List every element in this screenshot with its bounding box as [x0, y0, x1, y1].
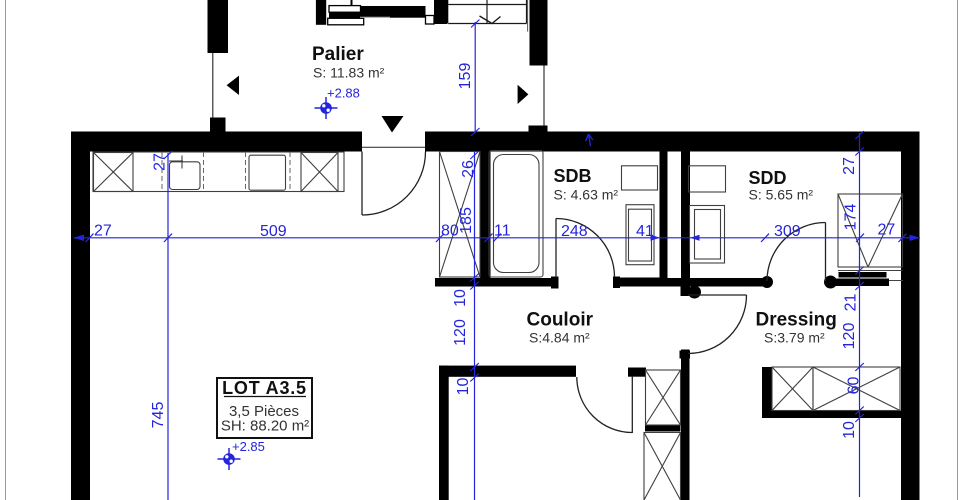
svg-text:LOT A3.5: LOT A3.5: [222, 378, 307, 398]
svg-text:27: 27: [152, 153, 169, 171]
svg-text:+2.85: +2.85: [232, 439, 265, 454]
svg-text:745: 745: [150, 402, 167, 429]
svg-text:SDB: SDB: [554, 166, 592, 186]
svg-text:41: 41: [636, 223, 654, 240]
svg-text:SDD: SDD: [749, 168, 787, 188]
svg-text:248: 248: [561, 223, 588, 240]
svg-text:27: 27: [841, 157, 858, 175]
svg-text:11: 11: [494, 223, 511, 240]
svg-text:S: 11.83 m²: S: 11.83 m²: [313, 65, 385, 81]
svg-text:174: 174: [843, 204, 860, 231]
svg-text:SH: 88.20 m²: SH: 88.20 m²: [221, 418, 309, 435]
svg-text:S:3.79 m²: S:3.79 m²: [764, 330, 825, 346]
svg-text:309: 309: [774, 223, 801, 240]
svg-text:159: 159: [457, 63, 474, 90]
svg-text:+2.88: +2.88: [327, 86, 360, 101]
svg-text:185: 185: [458, 207, 475, 234]
svg-text:120: 120: [452, 319, 469, 346]
svg-text:S: 5.65 m²: S: 5.65 m²: [749, 187, 814, 203]
svg-text:Palier: Palier: [312, 44, 364, 65]
svg-text:S:4.84 m²: S:4.84 m²: [529, 330, 590, 346]
svg-text:509: 509: [260, 223, 287, 240]
svg-text:10: 10: [452, 289, 469, 307]
svg-text:Dressing: Dressing: [756, 310, 837, 331]
svg-text:27: 27: [94, 223, 112, 240]
svg-text:60: 60: [846, 377, 863, 395]
svg-text:10: 10: [455, 378, 472, 396]
svg-text:21: 21: [843, 294, 860, 312]
svg-text:S: 4.63 m²: S: 4.63 m²: [554, 187, 619, 203]
svg-text:27: 27: [878, 222, 896, 239]
svg-text:120: 120: [841, 323, 858, 350]
svg-text:10: 10: [841, 421, 858, 439]
svg-text:Couloir: Couloir: [527, 310, 594, 331]
svg-text:26: 26: [460, 160, 477, 178]
svg-text:80: 80: [441, 223, 459, 240]
